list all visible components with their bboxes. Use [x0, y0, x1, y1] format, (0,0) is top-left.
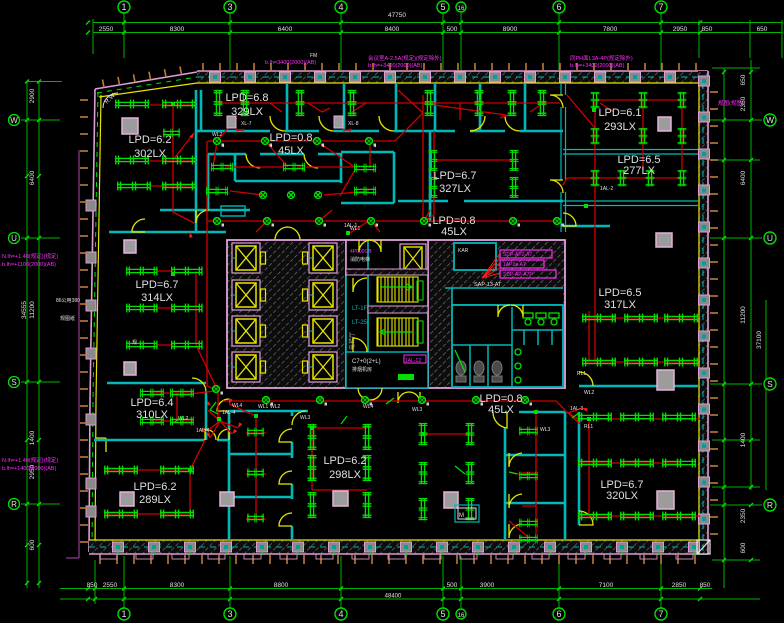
svg-text:2550: 2550 — [99, 26, 114, 33]
svg-text:S: S — [767, 379, 773, 389]
svg-text:1AL-3: 1AL-3 — [570, 406, 584, 412]
svg-text:8400: 8400 — [385, 26, 400, 33]
svg-text:b.lh=+1400(2000)(AB): b.lh=+1400(2000)(AB) — [2, 466, 57, 472]
svg-text:3: 3 — [227, 2, 232, 12]
svg-text:1: 1 — [121, 2, 126, 12]
svg-text:LPD=6.8: LPD=6.8 — [225, 92, 268, 104]
svg-text:6400: 6400 — [278, 26, 293, 33]
svg-text:1AP2a-A7: 1AP2a-A7 — [503, 262, 526, 268]
svg-text:6400: 6400 — [29, 170, 36, 185]
svg-text:WL2: WL2 — [212, 132, 223, 138]
svg-text:45LX: 45LX — [441, 226, 467, 238]
svg-text:3: 3 — [227, 609, 232, 619]
svg-text:WL1: WL1 — [258, 404, 269, 410]
svg-text:WL4: WL4 — [232, 403, 243, 409]
svg-text:45LX: 45LX — [278, 145, 304, 157]
svg-text:500: 500 — [447, 26, 458, 33]
svg-text:M: M — [459, 513, 464, 519]
svg-text:86公用380: 86公用380 — [56, 298, 80, 304]
svg-text:500: 500 — [447, 582, 458, 589]
svg-text:650: 650 — [757, 26, 768, 33]
svg-text:293LX: 293LX — [604, 121, 636, 133]
svg-text:W: W — [766, 115, 774, 125]
svg-text:1AL-1: 1AL-1 — [344, 223, 358, 229]
svg-text:48400: 48400 — [385, 594, 402, 600]
svg-text:1: 1 — [121, 609, 126, 619]
svg-text:5: 5 — [440, 609, 445, 619]
svg-text:5: 5 — [440, 2, 445, 12]
svg-text:34555: 34555 — [21, 301, 28, 319]
svg-text:277LX: 277LX — [623, 165, 655, 177]
svg-text:规图(规图): 规图(规图) — [718, 99, 744, 107]
svg-text:LT-25r: LT-25r — [352, 320, 369, 326]
svg-text:2850: 2850 — [672, 582, 687, 589]
svg-text:310LX: 310LX — [136, 409, 168, 421]
svg-text:1AL-4: 1AL-4 — [222, 410, 236, 416]
svg-text:b.lh=3400(2000)(AB): b.lh=3400(2000)(AB) — [265, 60, 316, 66]
svg-text:37100: 37100 — [756, 331, 763, 349]
svg-text:WL4: WL4 — [363, 404, 374, 410]
svg-text:U: U — [767, 233, 773, 243]
svg-text:1400: 1400 — [740, 432, 747, 447]
svg-text:8300: 8300 — [170, 582, 185, 589]
svg-text:16: 16 — [458, 613, 465, 619]
svg-text:289LX: 289LX — [139, 494, 171, 506]
svg-text:LPD=6.4: LPD=6.4 — [130, 397, 173, 409]
svg-text:650: 650 — [740, 74, 747, 85]
svg-text:C7+0(2+L): C7+0(2+L) — [352, 359, 381, 365]
svg-text:R: R — [767, 500, 773, 510]
svg-text:LPD=0.8: LPD=0.8 — [269, 132, 312, 144]
svg-text:600: 600 — [740, 542, 747, 553]
svg-text:11200: 11200 — [740, 306, 747, 324]
svg-text:LT-1F: LT-1F — [352, 306, 368, 312]
svg-text:1400: 1400 — [29, 430, 36, 445]
svg-text:同PH面L3A-4P(规定除外): 同PH面L3A-4P(规定除外) — [570, 54, 633, 62]
svg-text:1AL-4: 1AL-4 — [196, 428, 210, 434]
svg-text:7: 7 — [658, 2, 663, 12]
svg-text:2350: 2350 — [740, 508, 747, 523]
svg-text:SAP-13-AT: SAP-13-AT — [474, 282, 502, 288]
svg-text:SDP-AP2-A7: SDP-AP2-A7 — [503, 252, 532, 258]
svg-text:320LX: 320LX — [606, 490, 638, 502]
svg-text:8900: 8900 — [503, 26, 518, 33]
svg-text:850: 850 — [87, 582, 98, 589]
svg-text:302LX: 302LX — [134, 148, 166, 160]
svg-text:47750: 47750 — [388, 12, 406, 19]
svg-text:2950: 2950 — [673, 26, 688, 33]
svg-text:S: S — [11, 378, 16, 387]
svg-text:LPD=6.2: LPD=6.2 — [323, 455, 366, 467]
svg-text:N.lh=+1.40(规定)(规定): N.lh=+1.40(规定)(规定) — [2, 252, 58, 260]
svg-text:RL1: RL1 — [584, 424, 593, 430]
svg-text:45LX: 45LX — [488, 404, 514, 416]
svg-text:314LX: 314LX — [141, 292, 173, 304]
svg-text:U: U — [11, 234, 17, 243]
svg-text:KAR: KAR — [458, 248, 469, 254]
svg-text:SDP-AP-A7P: SDP-AP-A7P — [503, 272, 533, 278]
svg-text:RL1: RL1 — [577, 371, 586, 377]
svg-text:11200: 11200 — [29, 301, 36, 319]
svg-text:16: 16 — [458, 6, 465, 12]
svg-text:7800: 7800 — [603, 26, 618, 33]
svg-text:排烟机房: 排烟机房 — [352, 366, 372, 373]
svg-text:4: 4 — [338, 609, 343, 619]
svg-text:R: R — [11, 500, 17, 509]
svg-text:2900: 2900 — [29, 88, 36, 103]
svg-text:LPD=6.2: LPD=6.2 — [128, 134, 171, 146]
svg-text:LPD=6.7: LPD=6.7 — [433, 170, 476, 182]
svg-text:N.lh=+1.40(规定)(规定): N.lh=+1.40(规定)(规定) — [2, 456, 58, 464]
svg-text:b.lh=+3400(2000)(AB): b.lh=+3400(2000)(AB) — [368, 63, 423, 69]
svg-text:327LX: 327LX — [439, 183, 471, 195]
svg-text:7: 7 — [658, 609, 663, 619]
svg-text:1AL-12: 1AL-12 — [405, 358, 421, 364]
svg-text:600: 600 — [29, 539, 36, 550]
svg-text:消防电梯: 消防电梯 — [350, 256, 370, 263]
svg-text:4P000GB: 4P000GB — [350, 249, 372, 255]
svg-text:850: 850 — [700, 582, 711, 589]
svg-text:电梯厅: 电梯厅 — [348, 332, 356, 350]
svg-text:WL2: WL2 — [270, 404, 281, 410]
svg-text:WL3: WL3 — [412, 407, 423, 413]
svg-text:XL-7: XL-7 — [241, 121, 252, 127]
svg-text:LPD=6.7: LPD=6.7 — [135, 279, 178, 291]
svg-text:8800: 8800 — [274, 582, 289, 589]
svg-text:规图纸: 规图纸 — [60, 315, 75, 322]
svg-text:WL2: WL2 — [584, 390, 595, 396]
svg-text:6400: 6400 — [740, 170, 747, 185]
svg-text:298LX: 298LX — [329, 469, 361, 481]
svg-text:1AL-2: 1AL-2 — [600, 186, 614, 192]
svg-text:b.lh=+3400(2000)(AB): b.lh=+3400(2000)(AB) — [570, 63, 625, 69]
svg-text:7100: 7100 — [599, 582, 614, 589]
svg-text:b.lh=+1100(2000)(AB): b.lh=+1100(2000)(AB) — [2, 262, 56, 268]
svg-text:4: 4 — [338, 2, 343, 12]
svg-text:LPD=6.2: LPD=6.2 — [133, 481, 176, 493]
svg-text:W: W — [10, 116, 18, 125]
svg-text:WL3: WL3 — [540, 427, 551, 433]
svg-text:规: 规 — [132, 339, 137, 346]
svg-text:6: 6 — [556, 2, 561, 12]
svg-text:FM: FM — [310, 53, 317, 59]
svg-text:LPD=6.1: LPD=6.1 — [598, 107, 641, 119]
svg-text:8300: 8300 — [170, 26, 185, 33]
svg-text:会议室A-2.5A(规定)(规定除外): 会议室A-2.5A(规定)(规定除外) — [368, 54, 442, 62]
svg-text:WL3: WL3 — [300, 415, 311, 421]
svg-text:LPD=6.5: LPD=6.5 — [598, 287, 641, 299]
svg-text:317LX: 317LX — [604, 299, 636, 311]
svg-text:850: 850 — [702, 26, 713, 33]
svg-text:6: 6 — [556, 609, 561, 619]
svg-text:XL-8: XL-8 — [348, 121, 359, 127]
svg-text:3900: 3900 — [480, 582, 495, 589]
svg-text:2550: 2550 — [103, 582, 118, 589]
